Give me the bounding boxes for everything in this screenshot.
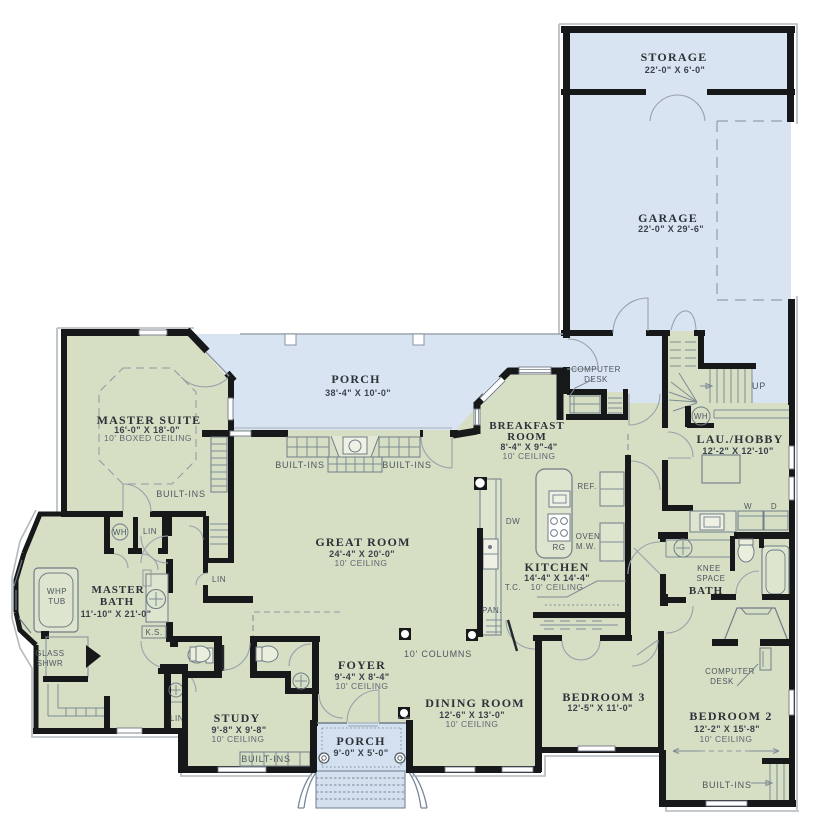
svg-text:BUILT-INS: BUILT-INS — [702, 780, 752, 790]
svg-text:GARAGE: GARAGE — [638, 211, 698, 225]
svg-text:GLASS: GLASS — [35, 649, 64, 658]
svg-text:BUILT-INS: BUILT-INS — [156, 489, 206, 499]
svg-text:11'-10" X 21'-0": 11'-10" X 21'-0" — [81, 609, 152, 619]
svg-text:10' BOXED CEILING: 10' BOXED CEILING — [104, 433, 192, 443]
svg-text:12'-5" X 11'-0": 12'-5" X 11'-0" — [567, 703, 632, 713]
svg-text:DW: DW — [506, 517, 520, 526]
svg-text:KNEE: KNEE — [697, 564, 721, 573]
svg-text:10' COLUMNS: 10' COLUMNS — [404, 649, 472, 659]
svg-text:MASTER: MASTER — [91, 584, 144, 596]
svg-text:COMPUTER: COMPUTER — [571, 365, 621, 374]
svg-text:BATH: BATH — [100, 596, 134, 608]
svg-text:STORAGE: STORAGE — [641, 50, 708, 64]
svg-text:10' CEILING: 10' CEILING — [503, 451, 556, 461]
svg-text:10' CEILING: 10' CEILING — [335, 558, 388, 568]
svg-text:LIN: LIN — [143, 527, 157, 536]
svg-text:WH: WH — [113, 528, 127, 537]
svg-text:FOYER: FOYER — [338, 658, 386, 672]
svg-text:PORCH: PORCH — [331, 372, 380, 386]
svg-text:KITCHEN: KITCHEN — [524, 560, 589, 574]
svg-text:22'-0" X 29'-6": 22'-0" X 29'-6" — [638, 224, 704, 234]
svg-text:OVEN: OVEN — [576, 532, 601, 541]
svg-text:K.S.: K.S. — [145, 628, 162, 637]
svg-text:9'-0" X 5'-0": 9'-0" X 5'-0" — [333, 748, 388, 758]
svg-text:BUILT-INS: BUILT-INS — [241, 754, 291, 764]
svg-text:W: W — [744, 502, 752, 511]
svg-text:BEDROOM 2: BEDROOM 2 — [689, 709, 772, 723]
svg-text:BEDROOM 3: BEDROOM 3 — [562, 690, 645, 704]
svg-text:22'-0" X 6'-0": 22'-0" X 6'-0" — [645, 65, 705, 75]
svg-text:D: D — [771, 502, 777, 511]
svg-text:PORCH: PORCH — [336, 734, 385, 748]
svg-text:REF.: REF. — [577, 482, 596, 491]
svg-text:WHP: WHP — [47, 587, 67, 596]
svg-text:TUB: TUB — [48, 597, 66, 606]
svg-text:M.W.: M.W. — [576, 542, 596, 551]
svg-text:10' CEILING: 10' CEILING — [336, 681, 389, 691]
svg-text:DESK: DESK — [584, 375, 608, 384]
svg-text:DESK: DESK — [710, 677, 734, 686]
svg-text:STUDY: STUDY — [214, 711, 261, 725]
svg-text:38'-4" X 10'-0": 38'-4" X 10'-0" — [325, 388, 391, 398]
svg-text:SPACE: SPACE — [696, 574, 725, 583]
svg-text:UP: UP — [752, 381, 766, 391]
svg-text:LAU./HOBBY: LAU./HOBBY — [696, 432, 783, 446]
svg-text:10' CEILING: 10' CEILING — [212, 734, 265, 744]
svg-text:PAN.: PAN. — [482, 606, 502, 615]
svg-text:BUILT-INS: BUILT-INS — [382, 460, 432, 470]
svg-text:WH: WH — [694, 412, 708, 421]
svg-text:T.C.: T.C. — [505, 583, 521, 592]
svg-text:RG: RG — [553, 543, 566, 552]
svg-text:LIN: LIN — [170, 714, 184, 723]
svg-text:10' CEILING: 10' CEILING — [446, 719, 499, 729]
svg-text:GREAT ROOM: GREAT ROOM — [315, 535, 410, 549]
svg-text:DINING ROOM: DINING ROOM — [425, 696, 525, 710]
svg-text:10' CEILING: 10' CEILING — [531, 582, 584, 592]
svg-text:BATH: BATH — [689, 585, 723, 597]
svg-text:LIN: LIN — [212, 575, 226, 584]
svg-text:BUILT-INS: BUILT-INS — [275, 460, 325, 470]
svg-text:10' CEILING: 10' CEILING — [700, 734, 753, 744]
svg-text:12'-2" X 12'-10": 12'-2" X 12'-10" — [702, 446, 773, 456]
svg-text:SHWR: SHWR — [37, 659, 63, 668]
svg-text:12'-2" X 15'-8": 12'-2" X 15'-8" — [694, 724, 760, 734]
